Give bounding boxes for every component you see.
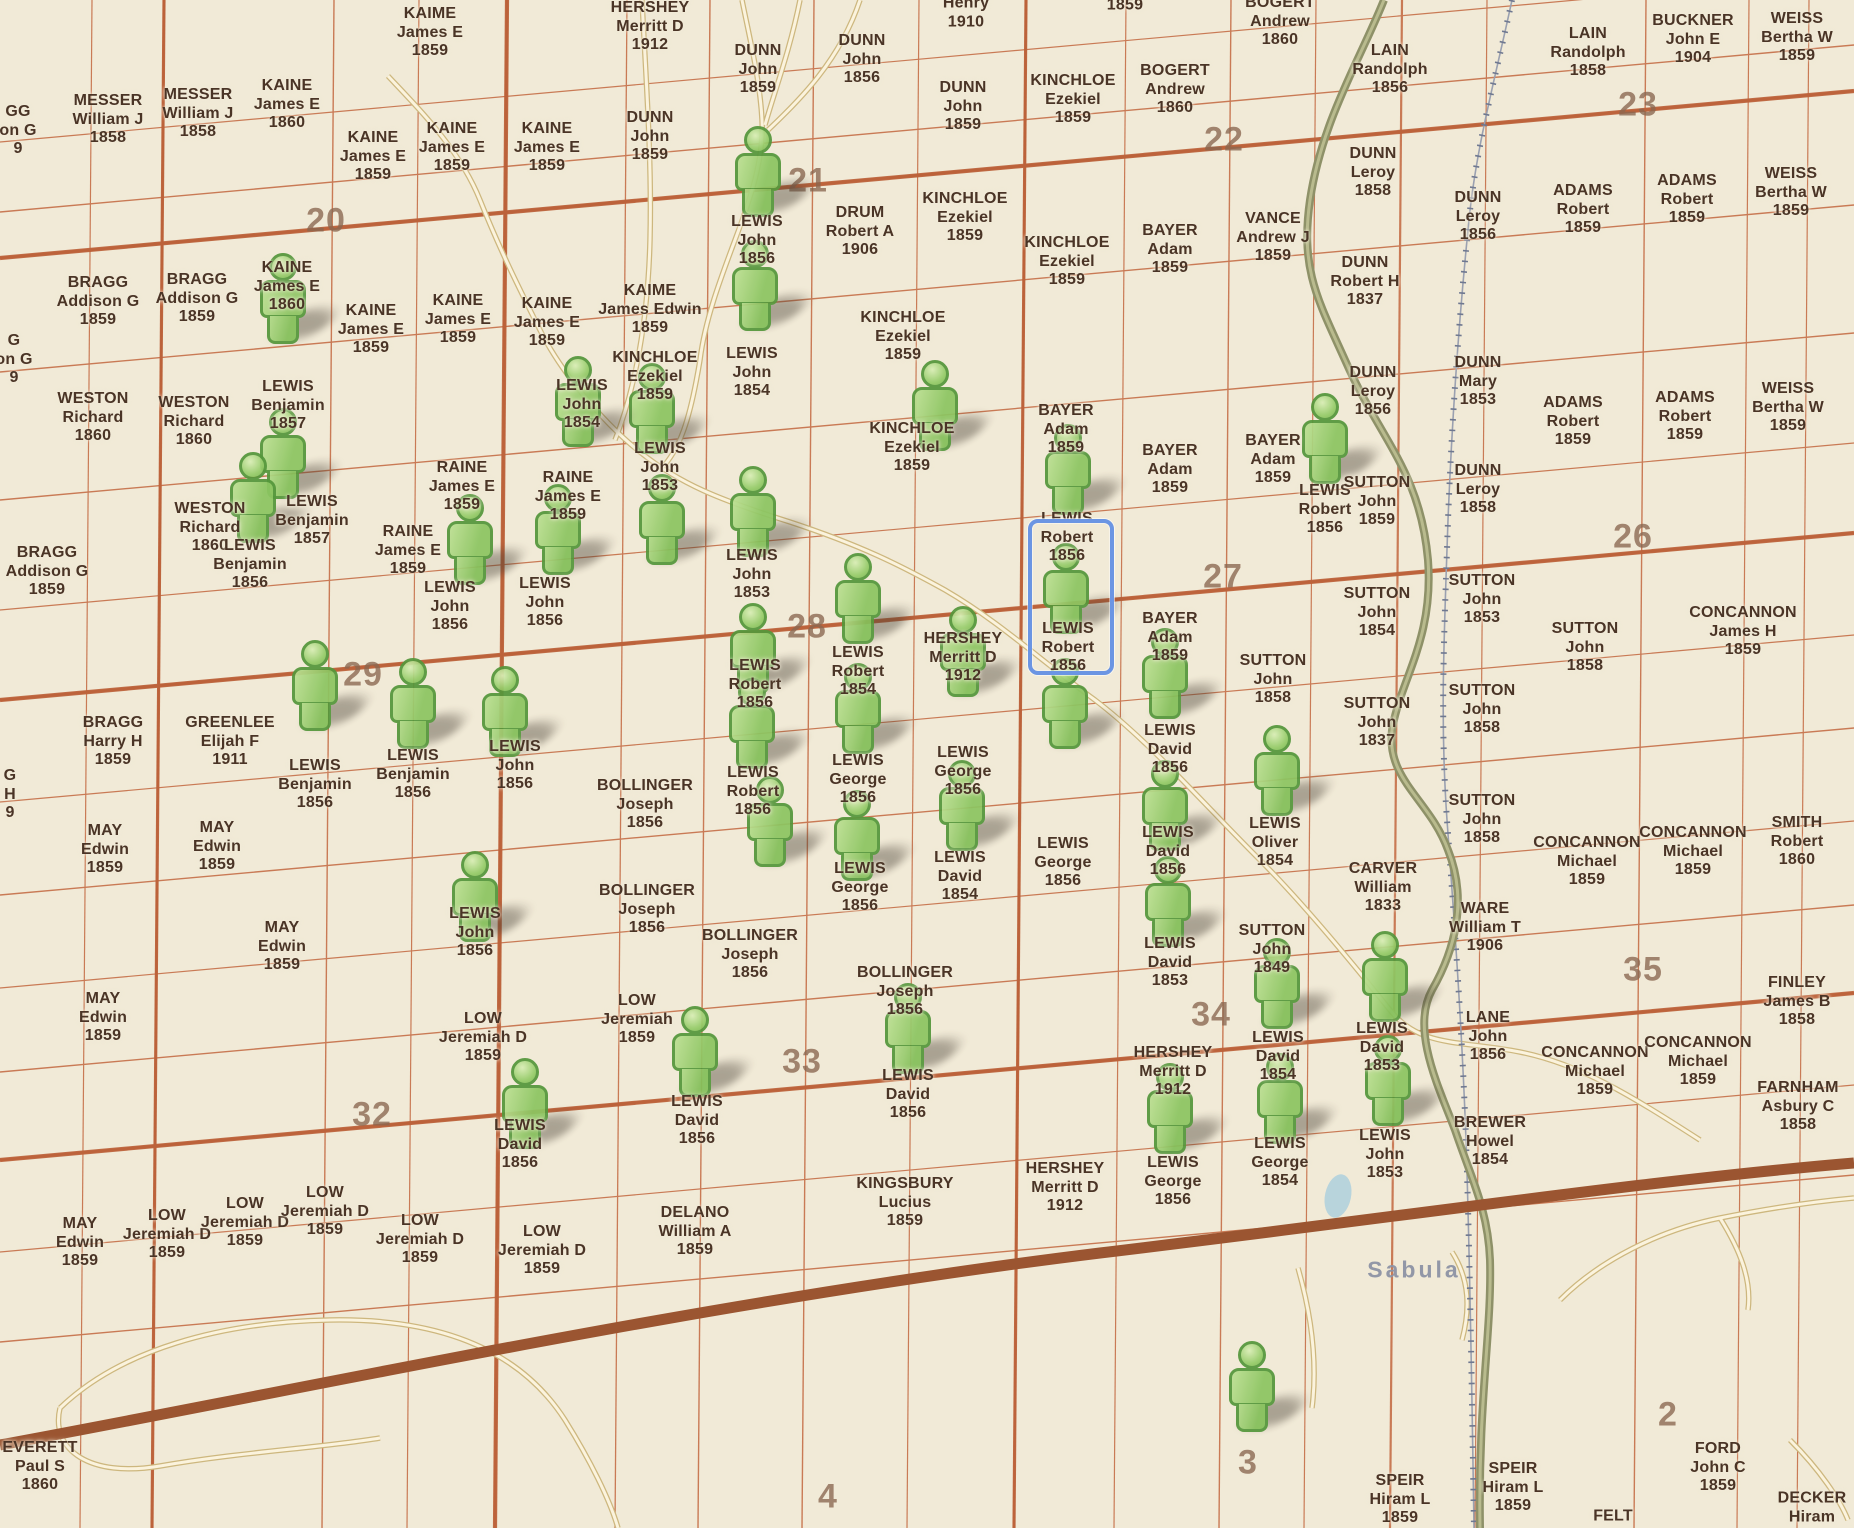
parcel-label: LANE John 1856 — [1466, 1009, 1510, 1065]
parcel-label: LEWIS John 1856 — [489, 738, 541, 794]
parcel-label: LEWIS George 1856 — [934, 744, 991, 800]
parcel-label: LEWIS George 1856 — [831, 860, 888, 916]
section-number: 27 — [1203, 558, 1243, 597]
parcel-label: RAINE James E 1859 — [375, 523, 441, 579]
person-icon[interactable] — [671, 1006, 719, 1097]
parcel-label: LEWIS John 1854 — [726, 345, 778, 401]
person-head — [491, 666, 519, 694]
parcel-label: LEWIS Benjamin 1857 — [251, 378, 325, 434]
parcel-label: HERSHEY Merritt D 1912 — [924, 630, 1003, 686]
person-hips — [1236, 1404, 1268, 1432]
person-torso — [1042, 685, 1088, 723]
person-torso — [1254, 752, 1300, 790]
person-icon[interactable] — [1361, 931, 1409, 1022]
person-hips — [1261, 1001, 1293, 1029]
parcel-label: DRUM Robert A 1906 — [826, 204, 895, 260]
person-icon[interactable] — [729, 466, 777, 557]
section-number: 20 — [306, 202, 346, 241]
parcel-label: BAYER Adam 1859 — [1038, 402, 1094, 458]
parcel-label: LOW Jeremiah 1859 — [601, 992, 673, 1048]
parcel-label: DUNN Leroy 1858 — [1454, 462, 1501, 518]
parcel-label: ADAMS Robert 1859 — [1657, 172, 1717, 228]
parcel-label: DELANO William A 1859 — [658, 1204, 731, 1260]
person-icon[interactable] — [291, 640, 339, 731]
section-number: 32 — [352, 1096, 392, 1135]
parcel-label: MESSER William J 1858 — [162, 86, 233, 142]
parcel-label: KAIME James Edwin 1859 — [598, 282, 702, 338]
parcel-label: LOW Jeremiah D 1859 — [201, 1195, 289, 1251]
parcel-label: FARNHAM Asbury C 1858 — [1757, 1079, 1838, 1135]
town-label: Sabula — [1367, 1257, 1460, 1284]
person-head — [1263, 725, 1291, 753]
person-torso — [1145, 883, 1191, 921]
person-icon[interactable] — [834, 553, 882, 644]
parcel-label: KAINE James E 1860 — [254, 259, 320, 315]
parcel-label: LEWIS John 1856 — [519, 575, 571, 631]
parcel-label: LOW Jeremiah D 1859 — [498, 1223, 586, 1279]
parcel-label: SUTTON John 1854 — [1344, 585, 1411, 641]
parcel-label: LEWIS Robert 1856 — [727, 764, 780, 820]
parcel-label: LEWIS George 1854 — [1251, 1135, 1308, 1191]
person-torso — [834, 817, 880, 855]
section-number: 28 — [787, 608, 827, 647]
person-hips — [1149, 691, 1181, 719]
parcel-label: CONCANNON Michael 1859 — [1533, 834, 1641, 890]
parcel-label: LEWIS David 1856 — [494, 1117, 546, 1173]
parcel-label: LEWIS David 1856 — [1142, 824, 1194, 880]
parcel-label: WESTON Richard 1860 — [57, 390, 128, 446]
parcel-label: LEWIS John 1854 — [556, 377, 608, 433]
parcel-label: MAY Edwin 1859 — [193, 819, 241, 875]
parcel-label: RAINE James E 1859 — [429, 459, 495, 515]
person-head — [739, 466, 767, 494]
person-head — [739, 603, 767, 631]
person-torso — [672, 1033, 718, 1071]
parcel-label: LEWIS David 1856 — [671, 1093, 723, 1149]
parcel-label: BRAGG Addison G 1859 — [156, 271, 239, 327]
parcel-label: KAINE James E 1859 — [419, 120, 485, 176]
parcel-label: DUNN Robert H 1837 — [1330, 254, 1399, 310]
person-torso — [639, 501, 685, 539]
parcel-label: SUTTON John 1858 — [1449, 792, 1516, 848]
parcel-label: WESTON Richard 1860 — [158, 394, 229, 450]
parcel-label: GREENLEE Elijah F 1911 — [185, 714, 275, 770]
parcel-label: LOW Jeremiah D 1859 — [376, 1212, 464, 1268]
parcel-label: SUTTON John 1859 — [1344, 474, 1411, 530]
parcel-label: LEWIS Oliver 1854 — [1249, 815, 1301, 871]
person-hips — [842, 616, 874, 644]
parcel-label: LAIN Randolph 1858 — [1550, 25, 1625, 81]
parcel-label: SUTTON John 1858 — [1240, 652, 1307, 708]
parcel-label: WEISS Bertha W 1859 — [1752, 380, 1824, 436]
parcel-label: BOLLINGER Joseph 1856 — [597, 777, 693, 833]
parcel-label: DUNN John 1859 — [734, 42, 781, 98]
person-hips — [1372, 1098, 1404, 1126]
parcel-label: LOW Jeremiah D 1859 — [123, 1207, 211, 1263]
parcel-label: LOW Jeremiah D 1859 — [281, 1184, 369, 1240]
person-torso — [390, 685, 436, 723]
parcel-label: LEWIS David 1856 — [1144, 722, 1196, 778]
person-torso — [1362, 958, 1408, 996]
person-hips — [1369, 994, 1401, 1022]
person-torso — [1302, 420, 1348, 458]
parcel-label: BOGERT Andrew 1860 — [1245, 0, 1315, 50]
person-hips — [739, 303, 771, 331]
person-hips — [646, 537, 678, 565]
parcel-label: LEWIS John 1853 — [634, 440, 686, 496]
parcel-label: HERSHEY Merritt D 1912 — [611, 0, 690, 55]
parcel-label: MESSER William J 1858 — [72, 92, 143, 148]
parcel-label: ADAMS Robert 1859 — [1543, 394, 1603, 450]
section-number: 33 — [782, 1043, 822, 1082]
parcel-label: SUTTON John 1858 — [1449, 682, 1516, 738]
section-number: 23 — [1618, 86, 1658, 125]
person-icon[interactable] — [1253, 725, 1301, 816]
person-hips — [842, 726, 874, 754]
person-head — [1311, 393, 1339, 421]
parcel-label: KINCHLOE Ezekiel 1859 — [612, 349, 697, 405]
plat-map: 202122232627282932333435234 GG on G 9G o… — [0, 0, 1854, 1528]
parcel-label: BAYER Adam 1859 — [1142, 610, 1198, 666]
parcel-label: BRAGG Addison G 1859 — [6, 544, 89, 600]
parcel-label: DUNN John 1856 — [838, 32, 885, 88]
person-hips — [1261, 788, 1293, 816]
parcel-label: LAIN Randolph 1856 — [1352, 42, 1427, 98]
parcel-label: FELT — [1593, 1508, 1633, 1527]
person-hips — [397, 721, 429, 749]
person-head — [681, 1006, 709, 1034]
parcel-label: MAY Edwin 1859 — [258, 919, 306, 975]
parcel-label: SMITH Robert 1860 — [1771, 814, 1824, 870]
person-hips — [267, 316, 299, 344]
parcel-label: KAINE James E 1859 — [340, 129, 406, 185]
parcel-label: G on G 9 — [0, 332, 33, 388]
person-torso — [1229, 1368, 1275, 1406]
section-number: 34 — [1191, 996, 1231, 1035]
person-torso — [1257, 1080, 1303, 1118]
parcel-label: CONCANNON Michael 1859 — [1541, 1044, 1649, 1100]
parcel-label: SUTTON John 1853 — [1449, 572, 1516, 628]
section-number: 2 — [1658, 1396, 1678, 1435]
person-torso — [292, 667, 338, 705]
parcel-label: BOGERT Andrew 1860 — [1140, 62, 1210, 118]
section-number: 22 — [1204, 121, 1244, 160]
parcel-label: 1859 — [1107, 0, 1143, 15]
parcel-label: KINGSBURY Lucius 1859 — [856, 1175, 953, 1231]
parcel-label: FORD John C 1859 — [1690, 1440, 1745, 1496]
person-torso — [732, 267, 778, 305]
parcel-label: KINCHLOE Ezekiel 1859 — [1030, 72, 1115, 128]
person-head — [239, 452, 267, 480]
parcel-label: FINLEY James B 1858 — [1763, 974, 1830, 1030]
parcel-label: EVERETT Paul S 1860 — [2, 1439, 77, 1495]
parcel-label: KINCHLOE Ezekiel 1859 — [860, 309, 945, 365]
person-torso — [482, 693, 528, 731]
parcel-label: MAY Edwin 1859 — [79, 990, 127, 1046]
parcel-label: WEISS Bertha W 1859 — [1761, 10, 1833, 66]
person-torso — [447, 521, 493, 559]
parcel-label: KINCHLOE Ezekiel 1859 — [1024, 234, 1109, 290]
parcel-label: LEWIS Robert 1856 — [729, 657, 782, 713]
parcel-label: HERSHEY Merritt D 1912 — [1134, 1044, 1213, 1100]
selection-box[interactable] — [1028, 519, 1114, 675]
section-number: 4 — [818, 1478, 838, 1517]
parcel-label: BRAGG Addison G 1859 — [57, 274, 140, 330]
parcel-label: BRAGG Harry H 1859 — [83, 714, 144, 770]
parcel-label: LEWIS David 1853 — [1144, 935, 1196, 991]
parcel-label: CARVER William 1833 — [1349, 860, 1417, 916]
parcel-label: BOLLINGER Joseph 1856 — [599, 882, 695, 938]
section-number: 35 — [1623, 951, 1663, 990]
parcel-label: CONCANNON Michael 1859 — [1644, 1034, 1752, 1090]
parcel-label: LEWIS Benjamin 1856 — [278, 757, 352, 813]
person-head — [1371, 931, 1399, 959]
parcel-label: VANCE Andrew J 1859 — [1236, 210, 1310, 266]
parcel-label: WEISS Bertha W 1859 — [1755, 165, 1827, 221]
parcel-label: BAYER Adam 1859 — [1142, 222, 1198, 278]
parcel-label: KAINE James E 1859 — [514, 295, 580, 351]
section-number: 3 — [1238, 1444, 1258, 1483]
parcel-label: LEWIS John 1853 — [726, 547, 778, 603]
parcel-label: BOLLINGER Joseph 1856 — [702, 927, 798, 983]
person-hips — [1309, 456, 1341, 484]
parcel-label: CONCANNON Michael 1859 — [1639, 824, 1747, 880]
parcel-label: SUTTON John 1849 — [1239, 922, 1306, 978]
parcel-label: SUTTON John 1837 — [1344, 695, 1411, 751]
person-icon[interactable] — [734, 126, 782, 217]
parcel-label: LEWIS David 1854 — [934, 849, 986, 905]
parcel-label: KAINE James E 1860 — [254, 77, 320, 133]
parcel-label: ADAMS Robert 1859 — [1553, 182, 1613, 238]
parcel-label: BAYER Adam 1859 — [1245, 432, 1301, 488]
parcel-label: LEWIS John 1856 — [424, 579, 476, 635]
parcel-label: LEWIS John 1856 — [731, 213, 783, 269]
parcel-label: KAINE James E 1859 — [338, 302, 404, 358]
parcel-label: MAY Edwin 1859 — [56, 1215, 104, 1271]
person-head — [301, 640, 329, 668]
parcel-label: LEWIS Benjamin 1856 — [213, 537, 287, 593]
person-hips — [542, 547, 574, 575]
person-head — [744, 126, 772, 154]
parcel-label: LEWIS Benjamin 1856 — [376, 747, 450, 803]
parcel-label: DECKER Hiram — [1778, 1489, 1847, 1526]
parcel-label: LEWIS John 1853 — [1359, 1127, 1411, 1183]
parcel-label: LEWIS George 1856 — [829, 752, 886, 808]
parcel-label: CONCANNON James H 1859 — [1689, 604, 1797, 660]
person-head — [461, 851, 489, 879]
parcel-label: BREWER Howel 1854 — [1454, 1114, 1526, 1170]
parcel-label: LEWIS George 1856 — [1144, 1154, 1201, 1210]
parcel-label: KAINE James E 1859 — [425, 292, 491, 348]
parcel-label: LEWIS David 1856 — [882, 1067, 934, 1123]
parcel-label: KINCHLOE Ezekiel 1859 — [869, 420, 954, 476]
parcel-label: LEWIS John 1856 — [449, 905, 501, 961]
person-head — [399, 658, 427, 686]
parcel-label: HERSHEY Merritt D 1912 — [1026, 1160, 1105, 1216]
section-number: 29 — [343, 656, 383, 695]
person-hips — [1049, 721, 1081, 749]
person-hips — [946, 823, 978, 851]
parcel-label: ADAMS Robert 1859 — [1655, 389, 1715, 445]
parcel-label: DUNN John 1859 — [939, 79, 986, 135]
parcel-label: GG on G 9 — [0, 103, 37, 159]
parcel-label: LEWIS David 1854 — [1252, 1029, 1304, 1085]
person-hips — [1154, 1126, 1186, 1154]
parcel-label: RAINE James E 1859 — [535, 469, 601, 525]
person-hips — [754, 839, 786, 867]
parcel-label: KAINE James E 1859 — [514, 120, 580, 176]
parcel-label: DUNN Mary 1853 — [1454, 354, 1501, 410]
parcel-label: DUNN Leroy 1856 — [1454, 189, 1501, 245]
parcel-label: LOW Jeremiah D 1859 — [439, 1010, 527, 1066]
person-torso — [730, 493, 776, 531]
parcel-label: KAIME James E 1859 — [397, 5, 463, 61]
parcel-label: SPEIR Hiram L 1859 — [1483, 1460, 1544, 1516]
parcel-label: LEWIS David 1853 — [1356, 1020, 1408, 1076]
parcel-label: DUNN John 1859 — [626, 109, 673, 165]
parcel-label: BOLLINGER Joseph 1856 — [857, 964, 953, 1020]
parcel-label: WARE William T 1906 — [1449, 900, 1521, 956]
person-torso — [835, 580, 881, 618]
person-icon[interactable] — [389, 658, 437, 749]
person-icon[interactable] — [1228, 1341, 1276, 1432]
parcel-label: DUNN Leroy 1858 — [1349, 145, 1396, 201]
person-icon[interactable] — [1301, 393, 1349, 484]
parcel-label: MAY Edwin 1859 — [81, 822, 129, 878]
person-torso — [735, 153, 781, 191]
parcel-label: DUNN Leroy 1856 — [1349, 364, 1396, 420]
parcel-label: SPEIR Hiram L 1859 — [1370, 1472, 1431, 1528]
parcel-label: Henry 1910 — [943, 0, 989, 32]
parcel-label: G H 9 — [4, 767, 17, 823]
person-head — [844, 553, 872, 581]
parcel-label: LEWIS George 1856 — [1034, 835, 1091, 891]
parcel-label: BAYER Adam 1859 — [1142, 442, 1198, 498]
person-head — [1238, 1341, 1266, 1369]
person-torso — [1142, 787, 1188, 825]
person-hips — [299, 703, 331, 731]
parcel-label: LEWIS Robert 1854 — [832, 644, 885, 700]
parcel-label: SUTTON John 1858 — [1552, 620, 1619, 676]
parcel-label: BUCKNER John E 1904 — [1652, 12, 1733, 68]
parcel-label: KINCHLOE Ezekiel 1859 — [922, 190, 1007, 246]
section-number: 26 — [1613, 518, 1653, 557]
